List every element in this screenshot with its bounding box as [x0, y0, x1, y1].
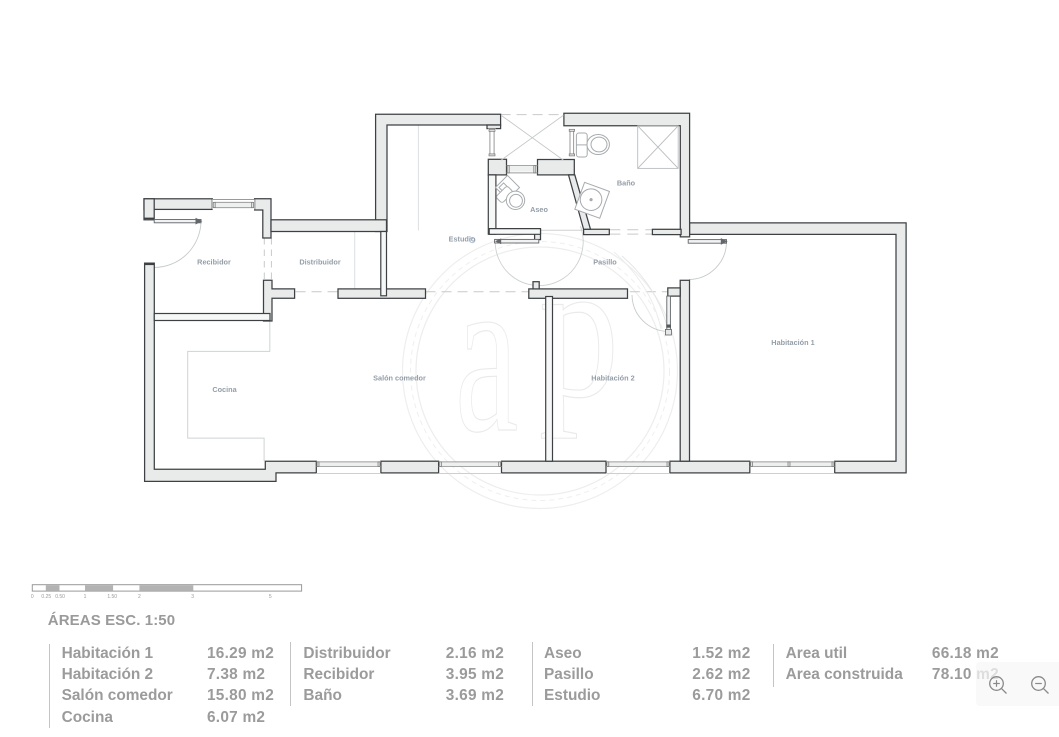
- svg-text:Habitación 2: Habitación 2: [591, 374, 634, 383]
- svg-text:5: 5: [269, 594, 272, 600]
- svg-text:Pasillo: Pasillo: [593, 258, 617, 267]
- svg-text:Recibidor: Recibidor: [197, 258, 231, 267]
- svg-text:Baño: Baño: [617, 179, 636, 188]
- svg-text:0.25: 0.25: [41, 594, 51, 600]
- svg-text:0.50: 0.50: [55, 594, 65, 600]
- svg-text:0: 0: [31, 594, 34, 600]
- svg-text:2: 2: [138, 594, 141, 600]
- svg-text:Aseo: Aseo: [530, 205, 548, 214]
- svg-text:1.50: 1.50: [107, 594, 117, 600]
- svg-text:Habitación 1: Habitación 1: [771, 338, 814, 347]
- svg-text:Distribuidor: Distribuidor: [299, 258, 341, 267]
- svg-text:Cocina: Cocina: [212, 385, 237, 394]
- svg-text:Estudio: Estudio: [449, 235, 476, 244]
- svg-text:3: 3: [191, 594, 194, 600]
- svg-text:1: 1: [84, 594, 87, 600]
- svg-text:Salón comedor: Salón comedor: [373, 374, 426, 383]
- svg-text:a: a: [455, 226, 518, 481]
